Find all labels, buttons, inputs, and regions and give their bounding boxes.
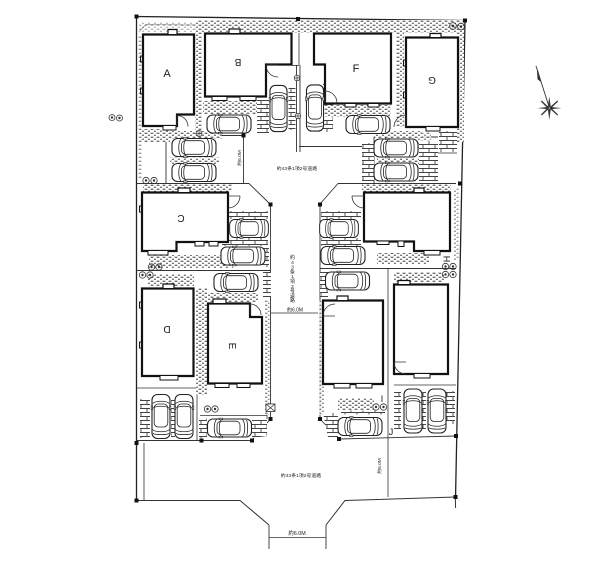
svg-text:約43条1項2号道路: 約43条1項2号道路 [277,165,318,172]
svg-text:H: H [442,256,452,263]
svg-text:約43条1項2号道路: 約43条1項2号道路 [281,472,322,479]
svg-text:F: F [353,63,360,75]
svg-text:約6.0M: 約6.0M [288,529,306,537]
svg-text:B: B [234,56,241,67]
svg-text:J: J [389,427,394,437]
svg-text:約6.0M: 約6.0M [376,458,383,473]
svg-text:路: 路 [290,297,295,304]
svg-text:E: E [226,343,237,350]
svg-text:C: C [177,212,184,223]
svg-text:G: G [428,74,436,85]
svg-text:D: D [163,323,170,334]
svg-text:約6.0M: 約6.0M [287,307,303,314]
svg-text:約6.0M: 約6.0M [236,150,243,165]
svg-text:A: A [163,68,171,80]
svg-text:I: I [381,394,384,404]
